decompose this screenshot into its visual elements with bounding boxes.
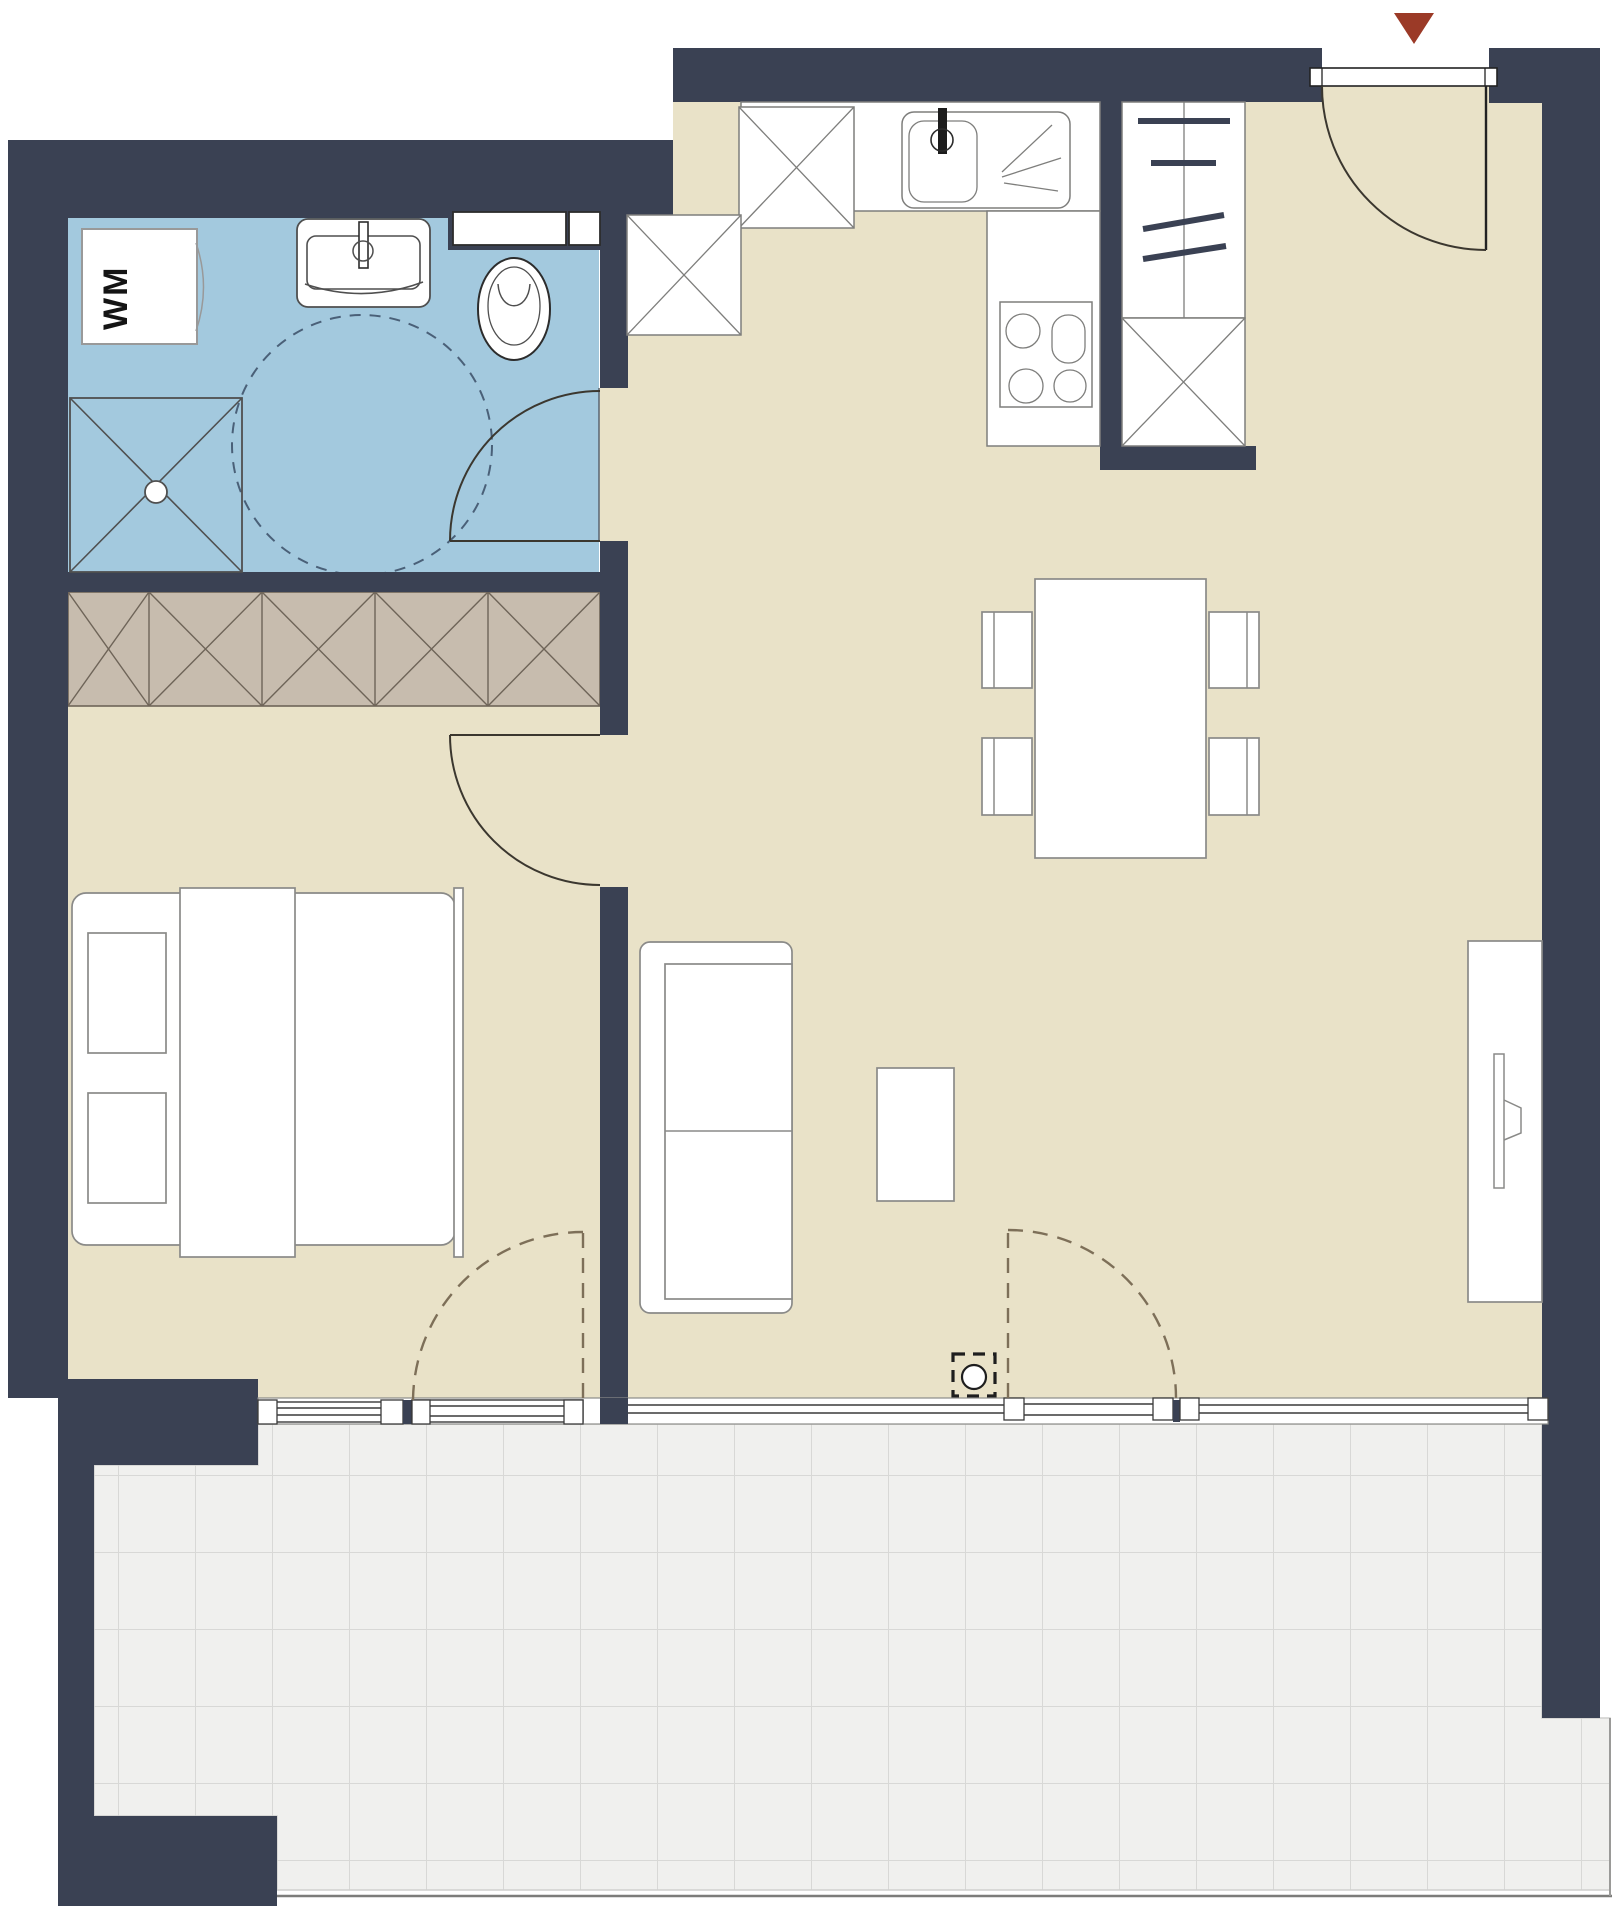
window-mullion	[403, 1400, 412, 1424]
kitchen-tall-cabinet	[739, 107, 854, 228]
floorplan-drawing: WM	[0, 0, 1616, 1920]
wall-right	[1542, 48, 1600, 1718]
wash-basin	[297, 219, 430, 307]
bed-duvet	[180, 888, 295, 1257]
wall-top-kitchen-entry	[673, 48, 1322, 102]
washing-machine: WM	[82, 229, 204, 344]
shower-drain-icon	[145, 481, 167, 503]
bed-pillow	[88, 1093, 166, 1203]
dining-table	[1035, 579, 1206, 858]
wall-bathroom-right-upper	[600, 218, 628, 388]
sofa	[640, 942, 792, 1313]
wall-top-bathroom	[8, 140, 673, 218]
floorplan-page: WM	[0, 0, 1616, 1920]
coffee-table	[877, 1068, 954, 1201]
entrance-threshold	[1310, 68, 1497, 86]
bathroom-doorway-floor	[599, 388, 628, 541]
kitchen-faucet-icon	[938, 108, 947, 154]
toilet-cistern-side	[569, 212, 600, 245]
floor-outlet-icon	[962, 1365, 986, 1389]
wall-below-closet	[1100, 446, 1256, 470]
double-bed	[72, 888, 463, 1257]
entry-door-recess-floor	[1322, 85, 1489, 105]
wall-bathroom-right-lower	[600, 541, 628, 735]
window-mullion	[1173, 1400, 1180, 1422]
entry-closet	[1122, 102, 1245, 446]
washing-machine-label: WM	[97, 266, 135, 330]
kitchen-sink	[902, 108, 1070, 208]
kitchen-base-cabinet	[627, 215, 741, 335]
toilet-cistern	[453, 212, 566, 245]
terrace-floor	[94, 1424, 1610, 1890]
bed-footboard	[454, 888, 463, 1257]
wall-bathroom-bottom	[8, 572, 628, 592]
divider-wall-foot	[600, 1398, 628, 1424]
wall-bedroom-bottom-left-block	[58, 1379, 258, 1465]
wall-left	[8, 140, 68, 1398]
wall-terrace-left	[58, 1465, 94, 1816]
kitchen-stove	[1000, 302, 1092, 407]
wall-terrace-bottom-left-block	[58, 1816, 277, 1906]
dining-chair	[1209, 612, 1259, 688]
dining-chair	[1209, 738, 1259, 815]
wall-bedroom-living-divider	[600, 887, 628, 1398]
closet-cabinet	[1122, 318, 1245, 446]
bedroom-built-in-wardrobe	[68, 592, 600, 706]
dining-chair	[982, 612, 1032, 688]
entrance-marker-icon	[1394, 13, 1434, 44]
bed-pillow	[88, 933, 166, 1053]
tv-sideboard	[1468, 941, 1542, 1302]
bedroom-doorway-floor	[600, 735, 628, 887]
dining-chair	[982, 738, 1032, 815]
wall-kitchen-closet-divider	[1100, 102, 1122, 446]
